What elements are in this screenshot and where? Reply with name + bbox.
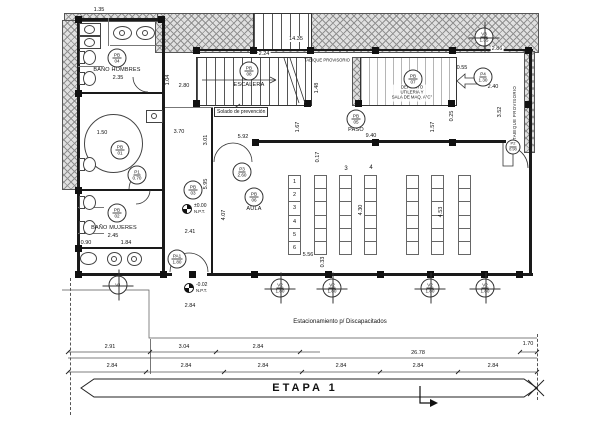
bubble-cross-v <box>430 273 431 304</box>
dimension-text: 5.92 <box>238 134 249 140</box>
dimension-text: 5.95 <box>203 179 209 190</box>
bubble-value: 0.90 <box>509 148 517 153</box>
door-arc-mujeres <box>136 190 150 204</box>
tabique-provisorio-vertical-label: TABIQUE PROVISORIO <box>512 66 517 140</box>
dimension-text: 2.40 <box>488 84 499 90</box>
level-datum: N.P.T. <box>194 210 206 215</box>
room-label-bano-hombres: BAÑO HOMBRES <box>93 67 140 73</box>
room-label-escalera: ESCALERA <box>234 82 265 88</box>
dimension-text: 2.84 <box>253 344 264 350</box>
dimension-text: 3.04 <box>179 344 190 350</box>
tag-bubble-pb07: PB07 <box>404 70 423 89</box>
dimension-text: 2.84 <box>258 363 269 369</box>
dimension-text: 2.35 <box>113 75 124 81</box>
deposito-label-line3: SALA DE MAQ. A°C° <box>392 95 432 100</box>
dimension-text: 2.91 <box>105 344 116 350</box>
dimension-text: 2.84 <box>336 363 347 369</box>
level-pb: ±0.00N.P.T. <box>182 204 206 214</box>
dimension-text: 0.55 <box>457 65 468 71</box>
dimension-text: 4.07 <box>221 210 227 221</box>
level-marker-text: ±0.00N.P.T. <box>194 204 206 214</box>
stair-break-line <box>284 58 305 103</box>
tabique-provisorio-horizontal-label: TABIQUE PROVISORIO <box>304 58 350 63</box>
dimension-text: 2.80 <box>179 83 190 89</box>
dimension-text: 3.01 <box>203 135 209 146</box>
dimension-text: 1.70 <box>523 341 534 347</box>
level-ext: -0.02N.P.T. <box>184 283 207 293</box>
dimension-text: 0.17 <box>315 152 321 163</box>
dimension-text: 1.35 <box>93 7 106 13</box>
dimension-text: 1.84 <box>121 240 132 246</box>
bubble-value: 07 <box>410 80 415 86</box>
tag-bubble-pb06: PB06 <box>245 188 264 207</box>
dimension-text: 14.35 <box>288 36 304 42</box>
tag-bubble-v2-4: V21.80 <box>476 279 495 298</box>
dimension-text: 2.41 <box>185 229 196 235</box>
dimension-text: 2.84 <box>107 363 118 369</box>
tag-bubble-v2-1: V21.80 <box>271 279 290 298</box>
linework-overlay <box>0 0 600 423</box>
dimension-text: 2.84 <box>488 363 499 369</box>
tag-bubble-pb02: PB02 <box>108 204 127 223</box>
etapa-banner-text: ETAPA 1 <box>272 382 337 394</box>
bubble-cross-v <box>332 273 333 304</box>
dimension-text: 4.53 <box>438 207 444 218</box>
solado-text: Solado de prevención <box>217 109 265 115</box>
bubble-value: 1.80 <box>173 260 182 266</box>
door-arc-aula-left <box>214 143 252 162</box>
bubble-cross-v <box>280 273 281 304</box>
dimension-text: 2.84 <box>185 303 196 309</box>
bubble-value: 02 <box>114 214 119 220</box>
dimension-text: 3.52 <box>497 107 503 118</box>
door-arc-hombres <box>133 77 148 92</box>
bubble-cross-v <box>118 270 119 301</box>
bubble-cross-v <box>485 273 486 304</box>
tag-bubble-p1: P10.70 <box>128 166 147 185</box>
level-marker-text: -0.02N.P.T. <box>196 283 207 293</box>
parking-note: Estacionamiento p/ Discapacitados <box>293 319 386 325</box>
tag-bubble-p4: P41.30 <box>474 68 493 87</box>
tag-bubble-v3: V31.35 <box>475 28 494 47</box>
tag-bubble-v2-2: V21.80 <box>323 279 342 298</box>
dimension-text: 1.04 <box>165 75 171 86</box>
dimension-text: 0.33 <box>320 257 326 268</box>
bubble-value: 2.60 <box>238 173 247 179</box>
dimension-text: 1.48 <box>314 83 320 94</box>
dimension-text: 1.67 <box>295 122 301 133</box>
dimension-text: 2.84 <box>413 363 424 369</box>
bubble-value: 08 <box>246 72 251 78</box>
solado-prevencion-label: Solado de prevención <box>214 107 268 117</box>
tag-bubble-p2: P20.90 <box>506 140 521 155</box>
dimension-text: 5.56 <box>303 252 314 258</box>
level-marker-icon <box>184 283 194 293</box>
bubble-value: 01 <box>117 151 122 157</box>
bubble-value: 0.70 <box>133 176 142 182</box>
bubble-value: 06 <box>251 198 256 204</box>
tag-bubble-p3: P32.60 <box>233 163 252 182</box>
desk-group-label: 3 <box>344 166 347 172</box>
bubble-value: 04 <box>114 59 119 65</box>
level-marker-icon <box>182 204 192 214</box>
dimension-text: 0.90 <box>81 240 92 246</box>
tag-bubble-pb04: PB04 <box>108 49 127 68</box>
parking-outline <box>62 290 537 338</box>
dimension-text: 9.40 <box>366 133 377 139</box>
tag-bubble-pb08: PB08 <box>240 62 259 81</box>
bubble-value: 1.30 <box>479 78 488 84</box>
dimension-text: 0.25 <box>449 111 455 122</box>
tag-bubble-v1: V1 <box>109 276 128 295</box>
tag-bubble-v2-3: V21.80 <box>421 279 440 298</box>
dimension-text: 2.24 <box>258 51 271 57</box>
tag-bubble-pb05: PB05 <box>347 110 366 129</box>
floor-plan-canvas: Solado de prevención TABIQUE PROVISORIO … <box>0 0 600 423</box>
tag-bubble-pb01: PB01 <box>111 141 130 160</box>
dimension-text: 3.70 <box>174 129 185 135</box>
dimension-text: 26.78 <box>411 350 425 356</box>
dim-ticks <box>66 350 539 374</box>
bubble-value: 03 <box>190 191 195 197</box>
level-datum: N.P.T. <box>196 289 207 294</box>
desk-group-label: 4 <box>369 165 372 171</box>
bubble-value: 05 <box>353 120 358 126</box>
dimension-text: 2.45 <box>108 233 119 239</box>
tag-bubble-pb03: PB03 <box>184 181 203 200</box>
room-label-aula: AULA <box>246 206 261 212</box>
dimension-text: 4.30 <box>358 205 364 216</box>
dimension-text: 1.57 <box>430 122 436 133</box>
room-label-bano-mujeres: BAÑO MUJERES <box>91 225 137 231</box>
tag-bubble-pa1: PA11.80 <box>168 250 187 269</box>
dimension-text: 1.50 <box>97 130 108 136</box>
dimension-text: 2.84 <box>181 363 192 369</box>
orientation-arrow-head <box>430 399 438 407</box>
dimension-text: 2.86 <box>491 46 504 52</box>
bubble-cross-v <box>484 22 485 53</box>
